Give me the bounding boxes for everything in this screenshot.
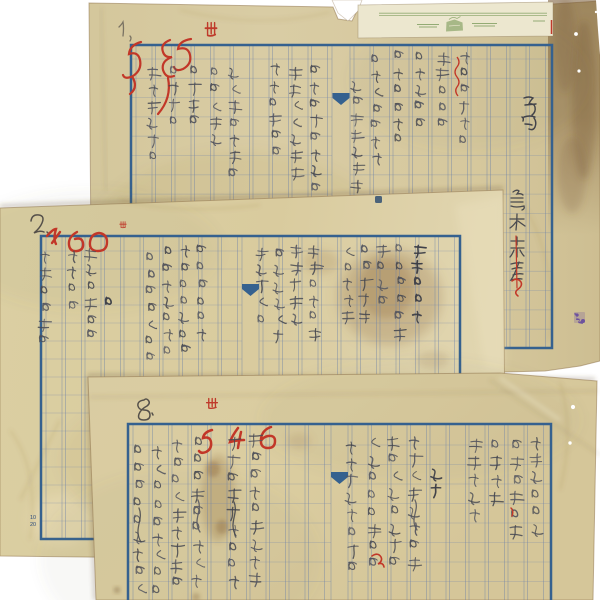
svg-text:10: 10 (30, 515, 36, 521)
svg-text:20: 20 (30, 522, 36, 528)
